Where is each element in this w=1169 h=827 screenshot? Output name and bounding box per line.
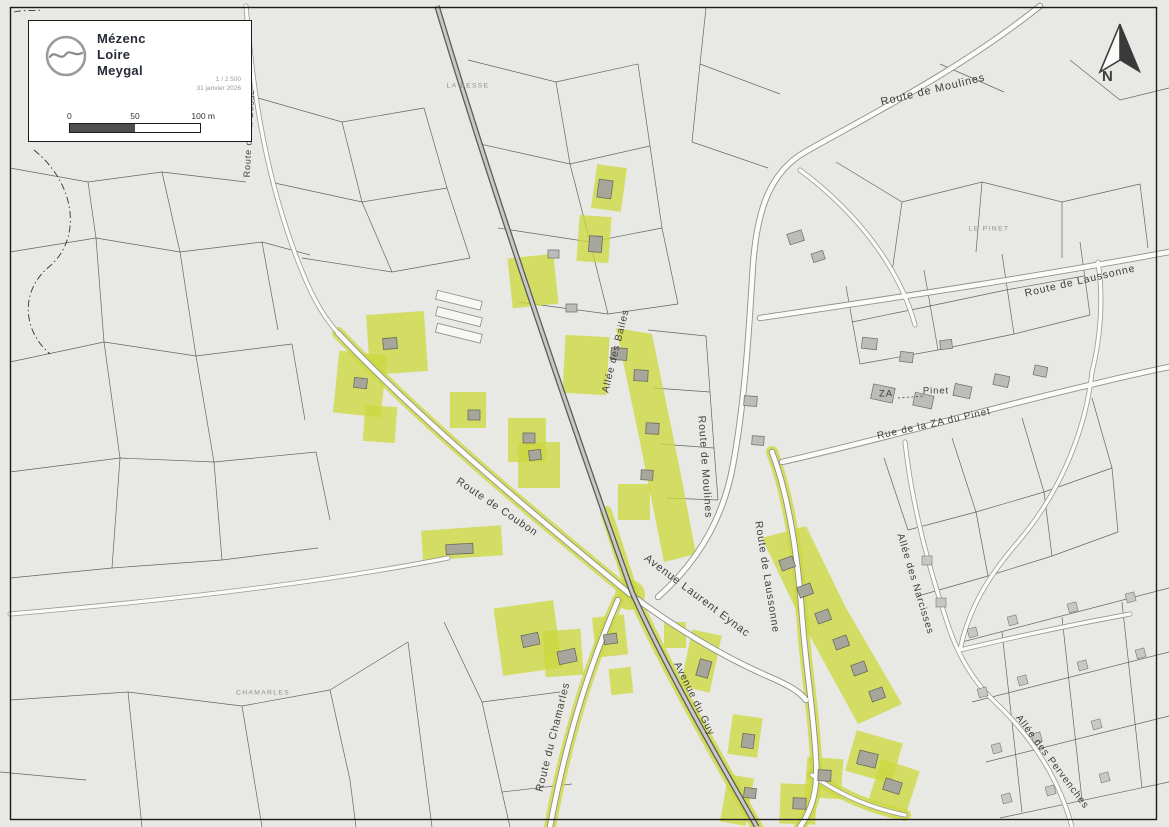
place-label-le-pinet: LE PINET <box>969 226 1010 233</box>
mezenc-loire-meygal-logo <box>43 33 89 79</box>
scale-bar-dark-half <box>70 124 135 132</box>
scale-bar-labels: 0 50 100 m <box>69 111 201 123</box>
place-label-la-besse: LA BESSE <box>447 83 490 90</box>
org-line-2: Loire <box>97 47 146 63</box>
scale-label-0: 0 <box>67 111 72 121</box>
legend-panel: Mézenc Loire Meygal 1 / 2 500 31 janvier… <box>28 20 252 142</box>
org-line-1: Mézenc <box>97 31 146 47</box>
road-label-za: ZA <box>879 389 893 400</box>
north-label: N <box>1102 68 1113 85</box>
scanned-cadastral-map-page: Route de Moulines Route de Laussonne Rou… <box>0 0 1169 827</box>
scale-bar-light-half <box>135 124 200 132</box>
map-scale-and-date: 1 / 2 500 31 janvier 2026 <box>197 75 241 93</box>
north-arrow-right-wing <box>1120 24 1140 72</box>
organization-name: Mézenc Loire Meygal <box>97 31 146 79</box>
org-line-3: Meygal <box>97 63 146 79</box>
north-arrow-left-wing <box>1100 24 1120 72</box>
road-label-pinet: Pinet <box>923 386 949 397</box>
north-arrow: N <box>1092 22 1148 92</box>
scale-bar: 0 50 100 m <box>69 111 201 133</box>
map-date: 31 janvier 2026 <box>197 84 241 93</box>
scale-bar-graphic <box>69 123 201 133</box>
scale-ratio: 1 / 2 500 <box>197 75 241 84</box>
place-label-chamarles: CHAMARLES <box>236 690 290 697</box>
scale-label-50: 50 <box>130 111 139 121</box>
scale-label-100m: 100 m <box>191 111 215 121</box>
